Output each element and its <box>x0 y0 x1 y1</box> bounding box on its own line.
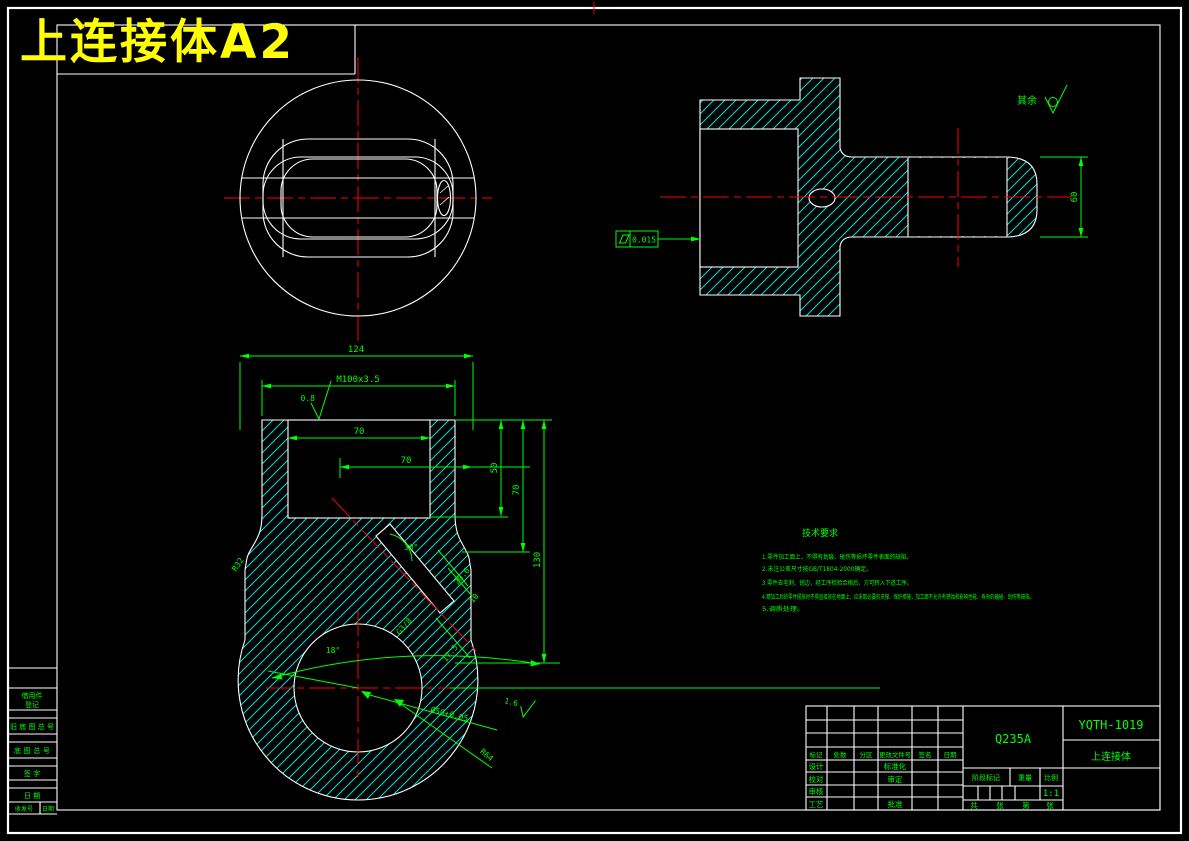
tb-role-check: 校对 <box>809 774 824 784</box>
dim-thread-arrow-r <box>446 384 455 389</box>
drawing-title: 上连接体A2 <box>20 15 295 70</box>
side-view-cross-hole <box>809 189 835 207</box>
dim-70b-label: 70 <box>401 456 412 466</box>
dim-124-label: 124 <box>348 345 364 355</box>
tech-req-line-3: 3.零件去毛刺、锐边，经工序检验合格后，方可转入下道工序。 <box>762 579 912 587</box>
dim-130-label: 130 <box>533 552 543 568</box>
tb-material: Q235A <box>995 732 1032 746</box>
tech-requirements: 技术要求 1.零件加工面上，不得有划痕、碰伤等损坏零件表面的缺陷。 2.未注公差… <box>762 527 1034 613</box>
tech-req-line-2: 2.未注公差尺寸按GB/T1804-2000确定。 <box>762 565 872 573</box>
drawing-frame <box>8 2 1181 833</box>
tech-req-heading: 技术要求 <box>802 527 838 539</box>
inner-frame <box>57 25 1160 810</box>
tb-sheet-label-2: 张 <box>996 801 1004 810</box>
dim-60-label: 60 <box>1070 192 1080 203</box>
dim-70r-arrow-b <box>521 543 526 552</box>
tb-sheet-label-4: 张 <box>1046 801 1054 810</box>
tb-appr-examine: 审定 <box>888 774 903 784</box>
tb-sheet-no-label: 第 <box>1022 800 1030 810</box>
rough-bore-check-icon <box>518 697 535 719</box>
tb-header-docno: 更改文件号 <box>879 750 912 759</box>
side-date-label: 日 期 <box>24 792 40 800</box>
dim-50-label: 50 <box>490 463 500 474</box>
fcf-value-label: 0.015 <box>632 236 656 245</box>
tb-part-name: 上连接体 <box>1091 750 1131 763</box>
tb-appr-approve: 批准 <box>888 799 903 809</box>
tb-header-mark: 标记 <box>810 750 824 759</box>
flatness-icon <box>620 235 630 243</box>
rest-surfaces-label: 其余 <box>1017 94 1037 107</box>
side-view-bore <box>700 129 798 267</box>
dim-130-arrow-t <box>542 420 547 429</box>
tb-header-zone: 分区 <box>860 750 874 759</box>
dim-124-arrow-r <box>464 354 473 359</box>
dim-70r-arrow-t <box>521 420 526 429</box>
dim-60-arrow-bottom <box>1079 228 1084 237</box>
tb-role-design: 设计 <box>809 761 824 771</box>
tb-header-count: 处数 <box>834 750 848 759</box>
side-borrow-label-1: 借用件 <box>22 691 43 700</box>
side-table: 借用件 登记 旧底图总号 底图总号 签 字 日 期 收发号 日期 <box>8 668 57 814</box>
fcf-symbol-cell <box>616 231 630 247</box>
tb-header-date: 日期 <box>944 751 958 759</box>
tb-weight-label: 重量 <box>1018 774 1032 782</box>
tb-scale-label: 比例 <box>1044 773 1058 782</box>
title-block: 标记 处数 分区 更改文件号 签名 日期 设计 校对 审核 工艺 标准化 审定 … <box>806 706 1160 810</box>
dim-thread-label: M100x3.5 <box>336 375 379 385</box>
dim-124-arrow-l <box>240 354 249 359</box>
tb-header-sign: 签名 <box>919 750 932 759</box>
side-old-base-no-label: 旧底图总号 <box>10 722 54 731</box>
side-sign-label: 签 字 <box>24 769 40 778</box>
side-base-no-label: 底图总号 <box>14 746 50 755</box>
cad-drawing-svg: 借用件 登记 旧底图总号 底图总号 签 字 日 期 收发号 日期 标记 处数 分… <box>0 0 1189 841</box>
top-view-pin-hatch <box>440 186 449 205</box>
tech-req-line-4: 4.精加工后的零件摆放时不得直接放在地面上，应采取必要的支撑、保护措施，加工面不… <box>762 593 1034 601</box>
side-recv-no-label: 收发号 <box>15 805 33 813</box>
side-borrow-label-2: 登记 <box>25 700 39 709</box>
dim-70b-arrow-r <box>463 465 472 470</box>
tb-drawing-no: YQTH-1019 <box>1078 718 1143 732</box>
dim-124-lines <box>240 356 473 430</box>
rough-top-label: 0.8 <box>301 394 316 403</box>
side-recv-date-label: 日期 <box>42 805 54 813</box>
cad-drawing-canvas: 借用件 登记 旧底图总号 底图总号 签 字 日 期 收发号 日期 标记 处数 分… <box>0 0 1189 841</box>
angle-18-label: 18° <box>326 646 340 655</box>
dim-thread-lines <box>262 380 455 416</box>
tb-appr-standard: 标准化 <box>884 761 907 771</box>
rough-bore-label: 1.6 <box>504 696 520 708</box>
outer-border <box>8 8 1181 833</box>
view-top <box>224 57 492 343</box>
tech-req-line-1: 1.零件加工面上，不得有划痕、碰伤等损坏零件表面的缺陷。 <box>762 553 912 561</box>
tb-role-review: 审核 <box>809 786 824 796</box>
angle-30-label: 30° <box>404 543 418 552</box>
dim-60-arrow-top <box>1079 157 1084 166</box>
dim-130-arrow-b <box>542 654 547 663</box>
dim-thread-arrow-l <box>262 384 271 389</box>
radius-r64-label: R64 <box>478 747 495 763</box>
tb-sheet-total-label: 共 <box>970 801 978 810</box>
tb-scale-value: 1:1 <box>1043 789 1059 799</box>
dim-70r-label: 70 <box>512 485 522 496</box>
rough-bore-group: 1.6 <box>502 693 536 719</box>
view-side-section <box>660 78 1072 316</box>
dim-70a-label: 70 <box>354 427 365 437</box>
tech-req-line-5: 5.调质处理。 <box>762 605 804 613</box>
dim-50-arrow-b <box>499 507 504 516</box>
roughness-circle-icon <box>1049 98 1058 107</box>
tb-role-process: 工艺 <box>809 800 824 809</box>
tb-stage-label: 阶段标记 <box>972 773 1000 782</box>
fillet-r32-label: R32 <box>230 556 246 573</box>
view-front-section <box>238 420 480 800</box>
dim-50-arrow-t <box>499 420 504 429</box>
